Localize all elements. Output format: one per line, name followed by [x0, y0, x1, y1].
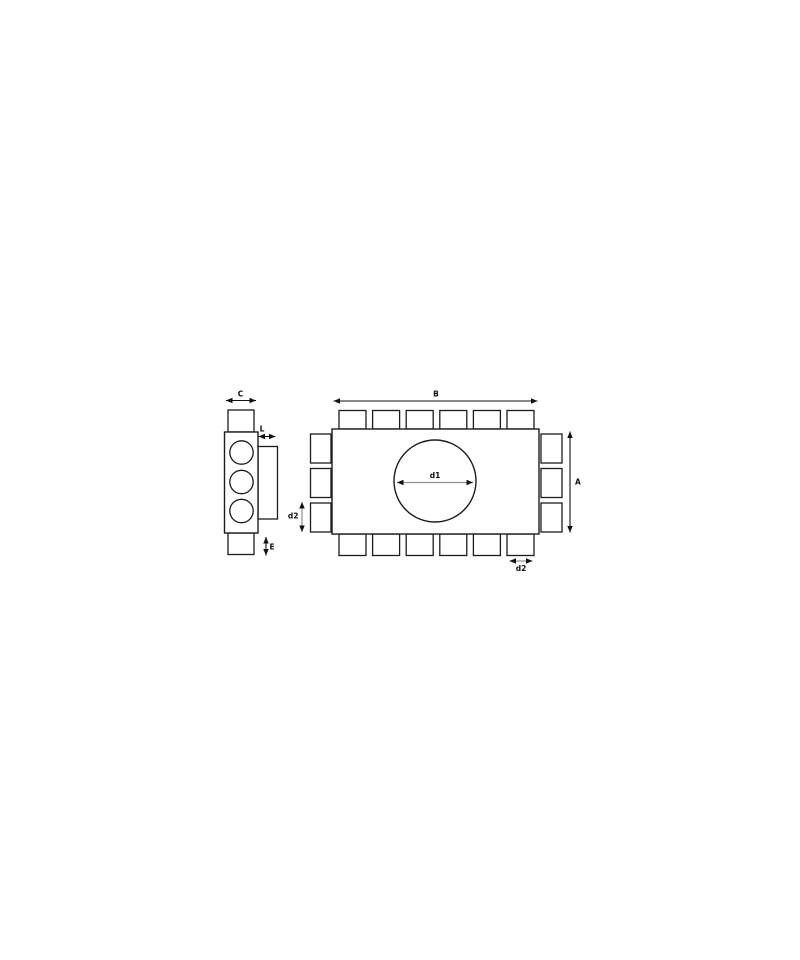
- front-left-outlet-stub: [311, 434, 332, 463]
- front-top-outlet-stub: [440, 411, 467, 430]
- dim-label-d2-bottom: d2: [516, 564, 527, 573]
- side-port-circle: [230, 441, 253, 464]
- front-bottom-outlet-stub: [473, 534, 500, 556]
- side-bottom-stub: [228, 533, 254, 555]
- front-right-outlet-stub: [541, 434, 562, 463]
- front-right-outlet-stub: [541, 503, 562, 532]
- front-bottom-outlet-stub: [339, 534, 366, 556]
- side-port-circle: [230, 470, 253, 493]
- front-top-outlet-stub: [339, 411, 366, 430]
- dim-label-l: L: [260, 425, 265, 434]
- front-left-outlet-stub: [311, 503, 332, 532]
- front-view: B A d1 d2 d2: [288, 390, 581, 574]
- front-bottom-outlet-stub: [440, 534, 467, 556]
- front-top-outlet-stub: [406, 411, 433, 430]
- front-bottom-outlet-stub: [373, 534, 400, 556]
- front-right-outlet-stub: [541, 469, 562, 498]
- front-left-outlet-stub: [311, 469, 332, 498]
- technical-diagram: C L E: [0, 0, 800, 960]
- side-view: C L E: [225, 390, 278, 556]
- dim-label-a: A: [575, 478, 581, 487]
- side-port-circle: [230, 499, 253, 522]
- side-flange: [258, 447, 278, 520]
- dim-label-d2-left: d2: [288, 512, 299, 521]
- dim-label-c: C: [238, 390, 244, 399]
- dim-label-b: B: [433, 390, 439, 399]
- drawing-canvas: C L E: [0, 0, 800, 960]
- dim-label-e: E: [270, 543, 275, 552]
- side-top-stub: [228, 410, 254, 432]
- front-top-outlet-stub: [507, 411, 534, 430]
- main-connection-circle: [394, 440, 476, 522]
- front-top-outlet-stub: [473, 411, 500, 430]
- front-bottom-outlet-stub: [507, 534, 534, 556]
- dim-label-d1: d1: [430, 471, 441, 480]
- front-bottom-outlet-stub: [406, 534, 433, 556]
- front-top-outlet-stub: [373, 411, 400, 430]
